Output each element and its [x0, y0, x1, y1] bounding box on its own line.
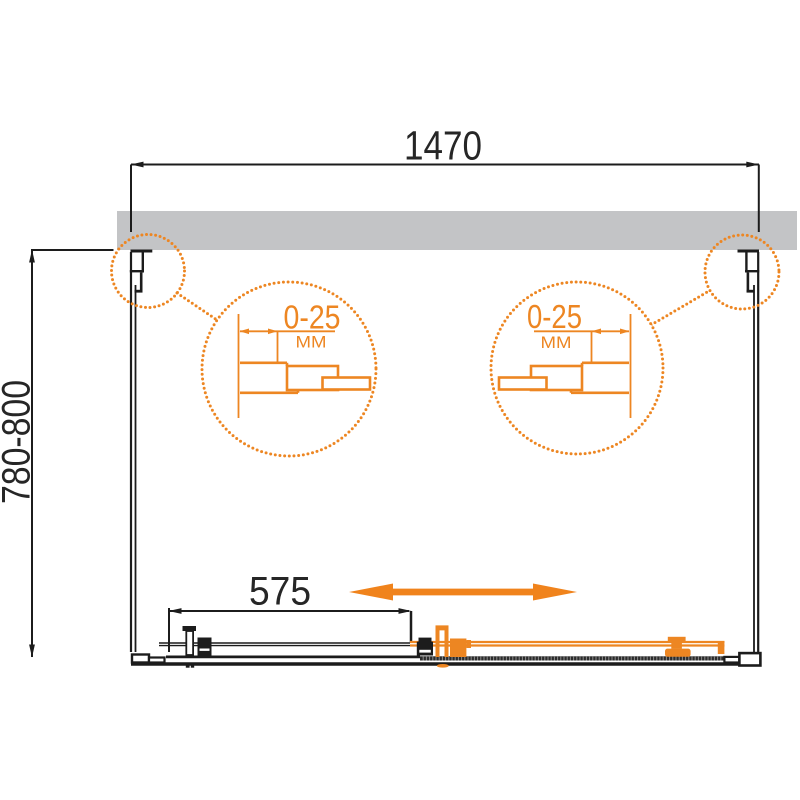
svg-text:575: 575 [249, 570, 311, 614]
svg-text:MM: MM [541, 333, 572, 352]
svg-text:MM: MM [296, 333, 327, 352]
svg-text:0-25: 0-25 [284, 299, 341, 336]
svg-text:0-25: 0-25 [527, 298, 582, 335]
svg-text:780-800: 780-800 [0, 380, 39, 504]
svg-text:1470: 1470 [404, 123, 482, 169]
